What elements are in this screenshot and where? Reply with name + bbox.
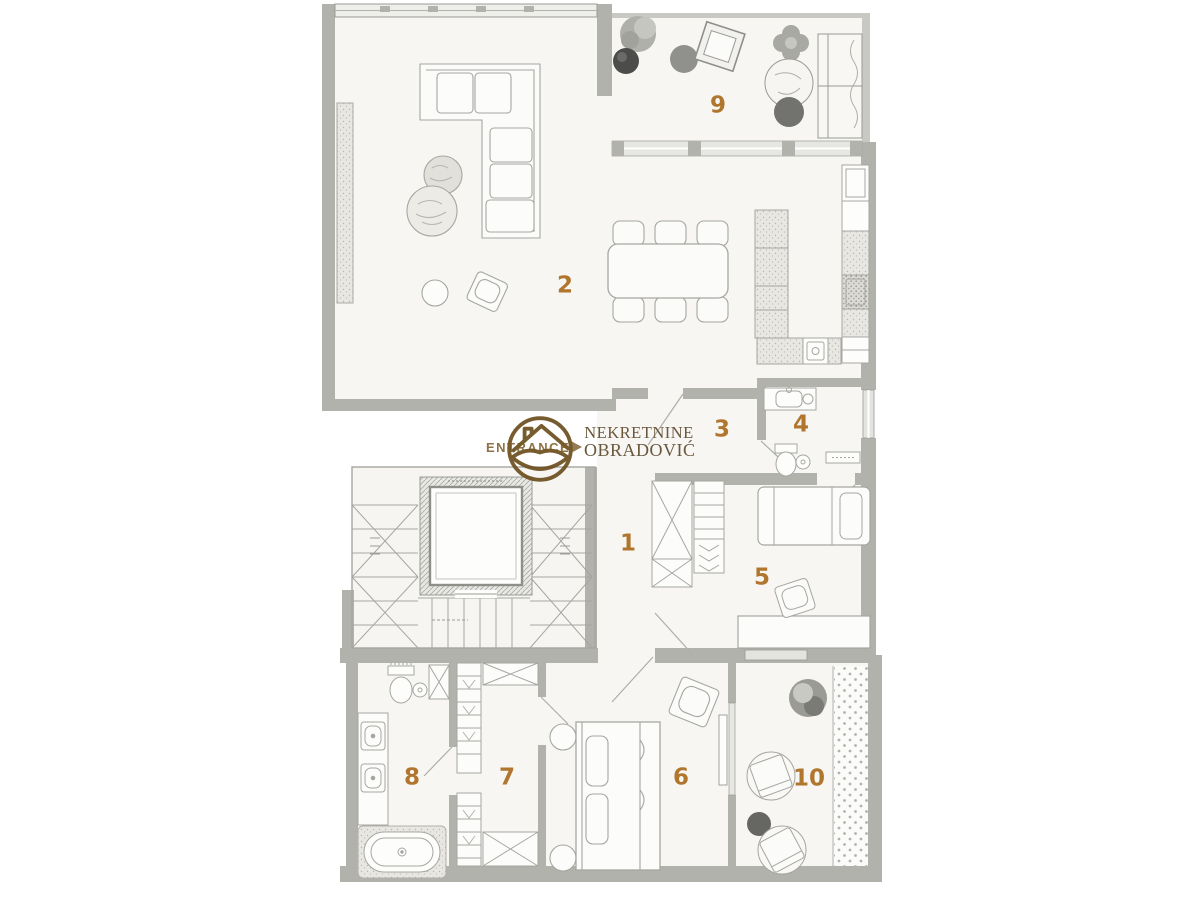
room-label-1: 1	[620, 533, 636, 556]
floor-plan-canvas: ENTRANCE NEKRETNINE OBRADOVIĆ 1 2 3 4 5 …	[0, 0, 1200, 900]
double-vanity	[358, 713, 388, 825]
side-table-round	[670, 45, 698, 73]
bedside-stool-bottom	[550, 845, 576, 871]
bathtub	[358, 826, 446, 878]
wardrobe-shelves	[694, 481, 724, 539]
room-label-9: 9	[710, 95, 726, 118]
counter	[757, 338, 803, 364]
double-bed	[576, 722, 660, 870]
dining-table-set	[608, 221, 728, 322]
room-label-4: 4	[793, 414, 809, 437]
wardrobe-small	[652, 559, 692, 587]
closet-bottom-box	[483, 832, 538, 866]
shelf-strip-top	[457, 663, 481, 773]
wardrobe-rail	[694, 539, 724, 573]
shower-box	[429, 665, 449, 699]
terrace-chair-1	[747, 752, 795, 800]
single-bed	[758, 487, 870, 545]
washbasin-counter	[764, 388, 816, 411]
agency-name-line2: OBRADOVIĆ	[584, 441, 694, 460]
bidet	[413, 683, 427, 697]
entrance-arrow-icon	[571, 441, 582, 453]
shelf-unit	[826, 452, 860, 463]
closet-top-box	[483, 663, 538, 685]
wardrobe-hanging	[652, 481, 692, 559]
room-label-7: 7	[499, 767, 515, 790]
agency-name: NEKRETNINE OBRADOVIĆ	[584, 424, 694, 460]
bedside-stool-top	[550, 724, 576, 750]
coffee-table	[422, 280, 448, 306]
room-label-5: 5	[754, 567, 770, 590]
stool-dark	[774, 97, 804, 127]
terrace-plant	[789, 679, 827, 717]
gravel-strip	[834, 666, 868, 866]
agency-name-line1: NEKRETNINE	[584, 424, 694, 441]
desk	[738, 616, 870, 648]
shelf-strip-bottom	[457, 793, 481, 866]
kitchen-island	[755, 210, 788, 338]
elevator	[420, 477, 532, 598]
terrace-chair-2	[758, 826, 806, 874]
room-label-3: 3	[714, 419, 730, 442]
entrance-label: ENTRANCE	[486, 440, 582, 455]
room-label-8: 8	[404, 767, 420, 790]
toilet-8	[388, 664, 414, 703]
terrace-bench	[818, 34, 862, 138]
room-label-6: 6	[673, 767, 689, 790]
tall-units-column	[842, 165, 869, 363]
room-label-10: 10	[793, 768, 825, 791]
radiator-shelf	[337, 103, 353, 303]
room-label-2: 2	[557, 275, 573, 298]
kitchen-sink	[803, 338, 828, 364]
